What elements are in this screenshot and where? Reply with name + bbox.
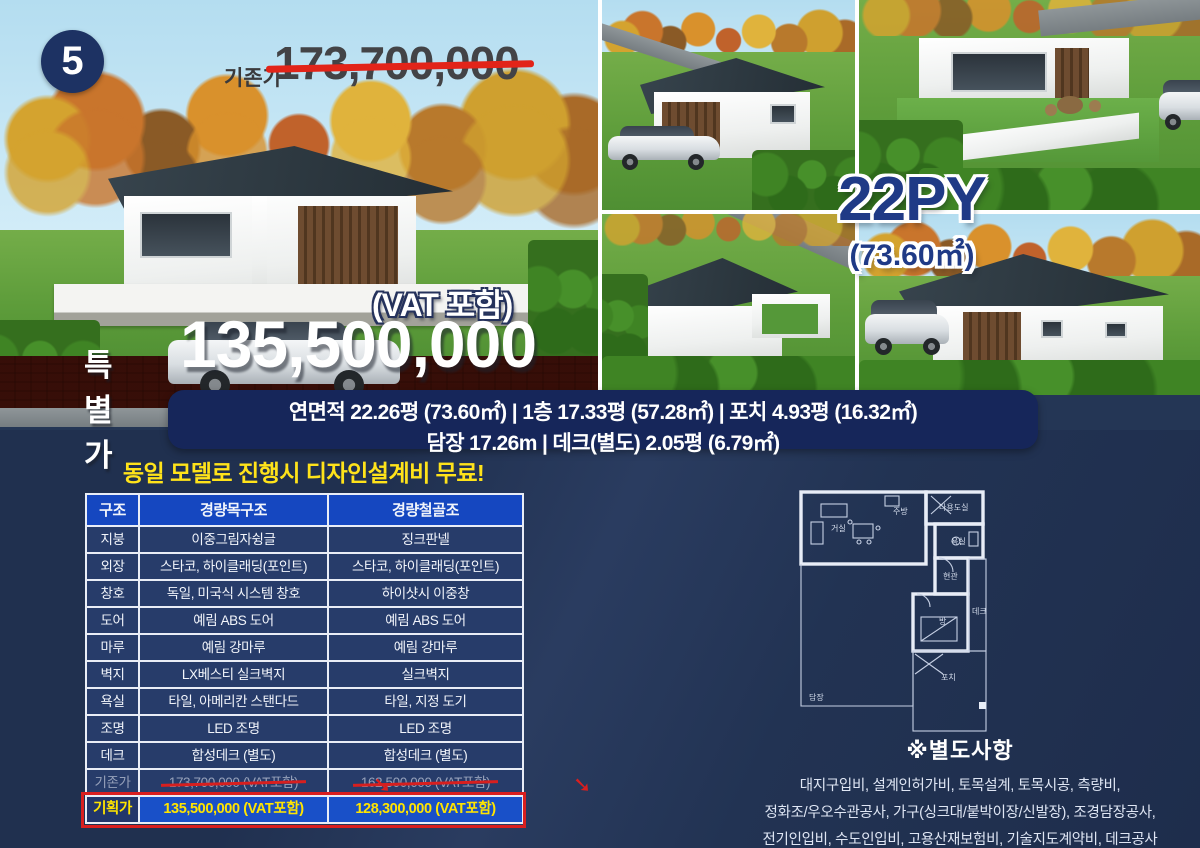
row-label: 조명: [86, 715, 139, 742]
row-label: 벽지: [86, 661, 139, 688]
row-label: 지붕: [86, 526, 139, 553]
plan-price-steel: 128,300,000 (VAT포함): [328, 796, 523, 823]
row-label: 마루: [86, 634, 139, 661]
table-row: 도어 예림 ABS 도어 예림 ABS 도어: [86, 607, 523, 634]
model-number-badge: 5: [41, 30, 104, 93]
row-cell: 예림 강마루: [328, 634, 523, 661]
plan-label-entrance: 현관: [943, 571, 958, 581]
plan-deck: [969, 559, 986, 651]
plan-living-kitchen: [801, 492, 926, 564]
row-label: 욕실: [86, 688, 139, 715]
table-row: 욕실 타일, 아메리칸 스탠다드 타일, 지정 도기: [86, 688, 523, 715]
thumb-van: [865, 300, 949, 356]
thumb-car: [608, 126, 720, 170]
thumb-car-right: [1159, 80, 1200, 132]
table-row: 데크 합성데크 (별도) 합성데크 (별도): [86, 742, 523, 769]
plan-label-bath: 욕실: [951, 536, 966, 546]
extras-title: ※별도사항: [742, 733, 1178, 765]
row-label: 도어: [86, 607, 139, 634]
old-price-wood: 173,700,000 (VAT포함): [139, 769, 328, 796]
row-label: 외장: [86, 553, 139, 580]
floor-plan-svg: 거실 주방 다용도실 욕실 현관 방 데크 포치 담장: [793, 484, 995, 740]
plan-fence: [801, 564, 913, 706]
old-price-row-label: 기존가: [86, 769, 139, 796]
spec-table: 구조 경량목구조 경량철골조 지붕 이중그림자슁글 징크판넬 외장 스타코, 하…: [85, 493, 522, 824]
plan-label-living: 거실: [831, 523, 846, 533]
plan-label-kitchen: 주방: [893, 506, 908, 516]
house-window: [140, 212, 232, 258]
extras-line: 대지구입비, 설계인허가비, 토목설계, 토목시공, 측량비,: [742, 773, 1178, 800]
old-price-steel: 162,500,000 (VAT포함): [328, 769, 523, 796]
old-price-row: 기존가 173,700,000 (VAT포함) 162,500,000 (VAT…: [86, 769, 523, 796]
floor-plan: 거실 주방 다용도실 욕실 현관 방 데크 포치 담장: [793, 484, 995, 740]
row-cell: 예림 강마루: [139, 634, 328, 661]
patio-table: [1057, 96, 1083, 114]
courtyard-window: [951, 52, 1047, 92]
table-row: 창호 독일, 미국식 시스템 창호 하이샷시 이중창: [86, 580, 523, 607]
plan-label-deck: 데크: [972, 607, 987, 616]
row-cell: LED 조명: [139, 715, 328, 742]
plan-price-row-label: 기획가: [86, 796, 139, 823]
extras-lines: 대지구입비, 설계인허가비, 토목설계, 토목시공, 측량비, 정화조/우오수관…: [742, 773, 1178, 848]
spec-banner: 연면적 22.26평 (73.60㎡) | 1층 17.33평 (57.28㎡)…: [168, 390, 1038, 449]
row-cell: 합성데크 (별도): [328, 742, 523, 769]
plan-price-wood: 135,500,000 (VAT포함): [139, 796, 328, 823]
row-cell: 하이샷시 이중창: [328, 580, 523, 607]
plan-label-fence: 담장: [809, 692, 824, 702]
row-cell: LX베스티 실크벽지: [139, 661, 328, 688]
header-structure: 구조: [86, 494, 139, 526]
plan-price-row: 기획가 135,500,000 (VAT포함) 128,300,000 (VAT…: [86, 796, 523, 823]
model-number: 5: [61, 39, 83, 84]
extras-line: 정화조/우오수관공사, 가구(싱크대/붙박이장/신발장), 조경담장공사,: [742, 800, 1178, 827]
extras-section: ※별도사항 대지구입비, 설계인허가비, 토목설계, 토목시공, 측량비, 정화…: [742, 733, 1178, 848]
row-label: 창호: [86, 580, 139, 607]
row-cell: 스타코, 하이클래딩(포인트): [328, 553, 523, 580]
table-row: 마루 예림 강마루 예림 강마루: [86, 634, 523, 661]
header-steel: 경량철골조: [328, 494, 523, 526]
row-cell: 예림 ABS 도어: [328, 607, 523, 634]
size-area: (73.60㎡): [812, 230, 1012, 274]
row-cell: 징크판넬: [328, 526, 523, 553]
plan-porch: [913, 651, 986, 731]
size-py: 22PY: [812, 164, 1012, 235]
row-cell: 합성데크 (별도): [139, 742, 328, 769]
promo-text: 동일 모델로 진행시 디자인설계비 무료!: [85, 454, 522, 488]
spec-line-2: 담장 17.26m | 데크(별도) 2.05평 (6.79㎡): [168, 427, 1038, 457]
row-label: 데크: [86, 742, 139, 769]
table-row: 벽지 LX베스티 실크벽지 실크벽지: [86, 661, 523, 688]
row-cell: 타일, 지정 도기: [328, 688, 523, 715]
row-cell: 예림 ABS 도어: [139, 607, 328, 634]
plan-label-room: 방: [939, 616, 947, 626]
row-cell: 타일, 아메리칸 스탠다드: [139, 688, 328, 715]
poster-canvas: 5 기존가 173,700,000 (VAT 포함) 특별가 135,500,0…: [0, 0, 1200, 848]
plan-label-porch: 포치: [941, 673, 956, 682]
row-cell: 독일, 미국식 시스템 창호: [139, 580, 328, 607]
plan-label-utility: 다용도실: [939, 502, 968, 512]
row-cell: LED 조명: [328, 715, 523, 742]
row-cell: 이중그림자슁글: [139, 526, 328, 553]
row-cell: 실크벽지: [328, 661, 523, 688]
extras-line: 전기인입비, 수도인입비, 고용산재보험비, 기술지도계약비, 데크공사: [742, 827, 1178, 848]
table-header-row: 구조 경량목구조 경량철골조: [86, 494, 523, 526]
header-wood: 경량목구조: [139, 494, 328, 526]
table-row: 조명 LED 조명 LED 조명: [86, 715, 523, 742]
table-row: 지붕 이중그림자슁글 징크판넬: [86, 526, 523, 553]
table-row: 외장 스타코, 하이클래딩(포인트) 스타코, 하이클래딩(포인트): [86, 553, 523, 580]
special-price-value: 135,500,000: [180, 306, 536, 382]
row-cell: 스타코, 하이클래딩(포인트): [139, 553, 328, 580]
small-yard: [762, 304, 818, 334]
spec-line-1: 연면적 22.26평 (73.60㎡) | 1층 17.33평 (57.28㎡)…: [168, 396, 1038, 426]
old-price-block: 기존가 173,700,000: [222, 36, 542, 96]
